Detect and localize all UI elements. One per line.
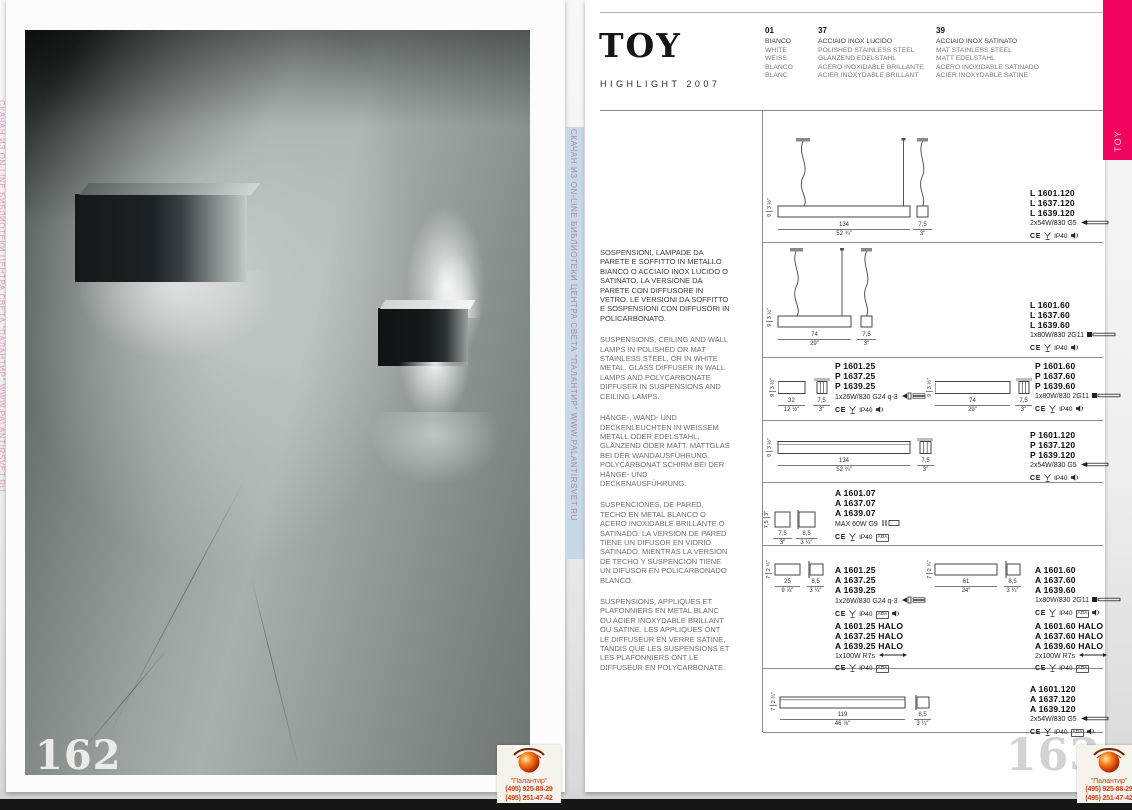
diagram-wall-25: 72 ¾″ 259 ⅞″ 8,53 ¼″ — [774, 561, 834, 601]
lamp-2g11-icon — [1092, 392, 1122, 401]
finish-name: MATT EDELSTAHL — [936, 55, 1058, 64]
product-code: P 1639.60 — [1035, 381, 1122, 391]
lamp-g5-icon — [1080, 219, 1110, 228]
palantir-phone-2: (495) 251-47-42 — [1085, 795, 1132, 804]
product-code: A 1601.25 HALO — [835, 621, 908, 631]
product-codes: A 1601.60 A 1637.60 A 1639.60 1x80W/830 … — [1035, 565, 1122, 619]
row-divider — [763, 420, 1103, 421]
height-dimension: 72 ¾″ — [765, 560, 772, 579]
lamp-spec: 1x26W/830 G24 q-3 — [835, 598, 898, 605]
diagram-suspension-60: 93 ½″ 7429″ 7,53″ — [777, 248, 897, 348]
glass-symbol-icon — [849, 664, 856, 674]
ip-rating: IP40 — [859, 611, 872, 618]
ip-rating: IP40 — [859, 407, 872, 414]
finish-name: ACIER INOXYDABLE SATINE — [936, 72, 1058, 81]
description-english: SUSPENSIONS, CEILING AND WALL LAMPS IN P… — [600, 335, 730, 401]
lamp-g24-icon — [901, 392, 927, 402]
finish-name: ACCIAIO INOX SATINATO — [936, 38, 1058, 47]
ce-mark: CE — [1035, 406, 1046, 413]
lamp-light-spread — [351, 412, 519, 542]
width-dimension: 259 ⅞″ — [775, 579, 800, 595]
palantir-name: "Палантир" — [511, 778, 548, 786]
product-code: L 1637.120 — [1030, 198, 1110, 208]
glass-symbol-icon — [849, 533, 856, 543]
lamp-spec: 2x100W R7s — [1035, 653, 1075, 660]
height-dimension: 93 ½″ — [766, 198, 773, 217]
glass-symbol-icon — [1049, 405, 1056, 415]
ada-badge: ADA — [876, 611, 890, 619]
diagram-ceiling-60: 93 ½″ 7429″ 7,53″ — [935, 378, 1035, 418]
lamp-g24-icon — [901, 596, 927, 606]
page-subtitle: HIGHLIGHT 2007 — [600, 79, 720, 89]
product-code: A 1637.60 — [1035, 575, 1122, 585]
speaker-icon — [1092, 609, 1101, 618]
lamp-spec: 1x80W/830 2G11 — [1030, 332, 1084, 339]
product-code: P 1601.25 — [835, 361, 927, 371]
ip-rating: IP40 — [1054, 345, 1067, 352]
product-code: A 1637.120 — [1030, 694, 1110, 704]
finish-name: ACERO INOXIDABLE BRILLANTE — [818, 64, 940, 73]
section-tab-toy: TOY — [1103, 0, 1132, 160]
product-codes: P 1601.60 P 1637.60 P 1639.60 1x80W/830 … — [1035, 361, 1122, 415]
speaker-icon — [1071, 474, 1080, 483]
product-code: A 1601.120 — [1030, 684, 1110, 694]
lamp-uplight-beam — [417, 178, 493, 318]
ce-mark: CE — [835, 611, 846, 618]
width-dimension: 7429″ — [778, 332, 851, 348]
product-code: P 1637.120 — [1030, 440, 1110, 450]
product-codes: L 1601.120 L 1637.120 L 1639.120 2x54W/8… — [1030, 188, 1110, 242]
width-dimension: 11946 ⅞″ — [780, 712, 905, 728]
depth-dimension: 8,53 ¼″ — [796, 531, 817, 547]
row-divider — [763, 357, 1103, 358]
palantir-phone-1: (495) 925-88-29 — [1085, 786, 1132, 795]
lamp-r7s-icon — [1078, 652, 1108, 660]
row-divider — [763, 242, 1103, 243]
depth-dimension: 7,53″ — [857, 332, 876, 348]
product-code: P 1601.60 — [1035, 361, 1122, 371]
page-number-left: 162 — [35, 732, 122, 775]
product-codes: A 1601.60 HALO A 1637.60 HALO A 1639.60 … — [1035, 621, 1108, 674]
product-code: A 1639.60 HALO — [1035, 641, 1108, 651]
height-dimension: 93 ½″ — [769, 378, 776, 397]
lamp-2g11-icon — [1092, 596, 1122, 605]
glass-symbol-icon — [1049, 609, 1056, 619]
glass-symbol-icon — [1044, 474, 1051, 484]
product-code: A 1601.25 — [835, 565, 927, 575]
ip-rating: IP40 — [859, 665, 872, 672]
ip-rating: IP40 — [1059, 610, 1072, 617]
product-code: L 1601.120 — [1030, 188, 1110, 198]
product-code: A 1601.60 HALO — [1035, 621, 1108, 631]
lamp-g5-icon — [1080, 715, 1110, 724]
top-rule — [600, 12, 1103, 13]
description-spanish: SUSPENCIONES, DE PARED, TECHO EN METAL B… — [600, 500, 730, 585]
description-german: HÄNGE-, WAND- UND DECKENLEUCHTEN IN WEIS… — [600, 413, 730, 488]
ip-rating: IP40 — [1054, 233, 1067, 240]
width-dimension: 13452 ¾″ — [778, 222, 910, 238]
product-codes: L 1601.60 L 1637.60 L 1639.60 1x80W/830 … — [1030, 300, 1117, 354]
wall-lamp-small — [378, 308, 468, 366]
ce-mark: CE — [835, 665, 846, 672]
speaker-icon — [892, 610, 901, 619]
product-code: L 1637.60 — [1030, 310, 1117, 320]
finish-name: ACCIAIO INOX LUCIDO — [818, 38, 940, 47]
finish-name: ACIER INOXYDABLE BRILLANT — [818, 72, 940, 81]
finish-column-37: 37 ACCIAIO INOX LUCIDO POLISHED STAINLES… — [818, 26, 940, 81]
section-tab-label: TOY — [1113, 130, 1123, 152]
product-codes: A 1601.25 HALO A 1637.25 HALO A 1639.25 … — [835, 621, 908, 674]
palantir-orb-icon — [1091, 746, 1127, 778]
product-code: P 1637.25 — [835, 371, 927, 381]
ip-rating: IP40 — [1059, 406, 1072, 413]
product-code: A 1637.07 — [835, 498, 901, 508]
ada-badge: ADA — [1076, 610, 1090, 618]
height-dimension: 93 ½″ — [766, 438, 773, 457]
glass-symbol-icon — [1044, 232, 1051, 242]
lamp-spec: 1x100W R7s — [835, 653, 875, 660]
glass-symbol-icon — [1044, 344, 1051, 354]
speaker-icon — [1071, 344, 1080, 353]
speaker-icon — [876, 406, 885, 415]
depth-dimension: 8,53 ¼″ — [1004, 579, 1021, 595]
product-description: SOSPENSIONI, LAMPADE DA PARETE E SOFFITT… — [600, 248, 730, 684]
wall-crack — [105, 477, 247, 742]
finish-name: MAT STAINLESS STEEL — [936, 47, 1058, 56]
lamp-g5-icon — [1080, 461, 1110, 470]
lamp-spec: 2x54W/830 G5 — [1030, 462, 1077, 469]
finish-column-39: 39 ACCIAIO INOX SATINATO MAT STAINLESS S… — [936, 26, 1058, 81]
ip-rating: IP40 — [1059, 665, 1072, 672]
glass-symbol-icon — [1049, 664, 1056, 674]
palantir-logo: "Палантир" (495) 925-88-29 (495) 251-47-… — [1077, 745, 1132, 803]
height-dimension: 72 ¾″ — [770, 692, 777, 711]
lamp-spec: 1x80W/830 2G11 — [1035, 597, 1089, 604]
product-code: L 1639.120 — [1030, 208, 1110, 218]
lamp-spec: 1x80W/830 2G11 — [1035, 393, 1089, 400]
diagram-ceiling-25: 93 ½″ 3212 ½″ 7,53″ — [778, 378, 838, 418]
product-photo: 162 — [25, 30, 530, 775]
width-dimension: 7429″ — [935, 398, 1010, 414]
finish-name: POLISHED STAINLESS STEEL — [818, 47, 940, 56]
product-codes: P 1601.120 P 1637.120 P 1639.120 2x54W/8… — [1030, 430, 1110, 484]
bottom-bar — [0, 799, 1132, 810]
depth-dimension: 7,53″ — [913, 222, 932, 238]
diagram-ceiling-120: 93 ½″ 13452 ¾″ 7,53″ — [777, 438, 947, 478]
ce-mark: CE — [1030, 345, 1041, 352]
product-code: A 1639.07 — [835, 508, 901, 518]
speaker-icon — [1076, 405, 1085, 414]
diagram-wall-60: 72 ¾″ 6124″ 8,53 ¼″ — [933, 561, 1033, 601]
height-dimension: 93 ½″ — [766, 308, 773, 327]
product-code: P 1637.60 — [1035, 371, 1122, 381]
depth-dimension: 8,53 ¼″ — [807, 579, 824, 595]
ada-badge: ADA — [1076, 665, 1090, 673]
right-page: TOY HIGHLIGHT 2007 01 BIANCO WHITE WEISS… — [585, 0, 1105, 792]
diagram-wall-120: 72 ¾″ 11946 ⅞″ 8,53 ¼″ — [779, 694, 949, 734]
ce-mark: CE — [835, 407, 846, 414]
product-code: P 1639.25 — [835, 381, 927, 391]
description-italian: SOSPENSIONI, LAMPADE DA PARETE E SOFFITT… — [600, 248, 730, 323]
ce-mark: CE — [1030, 475, 1041, 482]
palantir-orb-icon — [511, 746, 547, 778]
description-french: SUSPENSIONS, APPLIQUES ET PLAFONNIERS EN… — [600, 597, 730, 672]
finish-name: GLÄNZEND EDELSTAHL — [818, 55, 940, 64]
lamp-spec: MAX 60W G9 — [835, 521, 878, 528]
product-code: A 1601.07 — [835, 488, 901, 498]
depth-dimension: 8,53 ¼″ — [914, 712, 931, 728]
product-code: A 1601.60 — [1035, 565, 1122, 575]
wall-light-glow — [39, 270, 309, 490]
product-codes: A 1601.25 A 1637.25 A 1639.25 1x26W/830 … — [835, 565, 927, 620]
lamp-2g11-icon — [1087, 331, 1117, 340]
diagram-wall-07: 7,53″ 7,53″ 8,53 ¼″ — [774, 510, 829, 550]
height-dimension: 7,53″ — [763, 511, 770, 528]
product-code: P 1601.120 — [1030, 430, 1110, 440]
product-code: A 1639.25 — [835, 585, 927, 595]
product-codes: P 1601.25 P 1637.25 P 1639.25 1x26W/830 … — [835, 361, 927, 416]
glass-symbol-icon — [849, 610, 856, 620]
ce-mark: CE — [1035, 610, 1046, 617]
ce-mark: CE — [835, 534, 846, 541]
height-dimension: 93 ½″ — [926, 378, 933, 397]
lamp-g9-icon — [881, 519, 901, 529]
depth-dimension: 7,53″ — [917, 458, 934, 474]
product-codes: A 1601.07 A 1637.07 A 1639.07 MAX 60W G9… — [835, 488, 901, 543]
product-code: A 1637.25 — [835, 575, 927, 585]
glass-symbol-icon — [849, 406, 856, 416]
catalog-spread: СКАЧАН ИЗ ON-LINE БИБЛИОТЕКИ ЦЕНТРА СВЕТ… — [0, 0, 1132, 810]
palantir-logo: "Палантир" (495) 925-88-29 (495) 251-47-… — [497, 745, 561, 803]
lamp-spec: 1x26W/830 G24 q-3 — [835, 394, 898, 401]
watermark-center-strip: СКАЧАН ИЗ ON-LINE БИБЛИОТЕКИ ЦЕНТРА СВЕТ… — [565, 127, 584, 559]
lamp-spec: 2x54W/830 G5 — [1030, 220, 1077, 227]
product-code: A 1637.25 HALO — [835, 631, 908, 641]
depth-dimension: 7,53″ — [1015, 398, 1032, 414]
product-code: P 1639.120 — [1030, 450, 1110, 460]
wall-lamp-large — [75, 194, 247, 282]
product-code: L 1601.60 — [1030, 300, 1117, 310]
left-page: 162 — [6, 0, 565, 792]
product-code: A 1637.60 HALO — [1035, 631, 1108, 641]
ip-rating: IP40 — [1054, 475, 1067, 482]
header-rule — [600, 110, 1103, 111]
column-divider — [762, 110, 763, 732]
ce-mark: CE — [1030, 233, 1041, 240]
page-title: TOY — [599, 26, 682, 65]
height-dimension: 72 ¾″ — [926, 560, 933, 579]
lamp-r7s-icon — [878, 652, 908, 660]
product-code: A 1639.25 HALO — [835, 641, 908, 651]
palantir-phone-2: (495) 251-47-42 — [505, 795, 552, 804]
finish-code: 37 — [818, 26, 940, 35]
product-code: L 1639.60 — [1030, 320, 1117, 330]
depth-dimension: 7,53″ — [813, 398, 830, 414]
width-dimension: 3212 ½″ — [778, 398, 805, 414]
lamp-spec: 2x54W/830 G5 — [1030, 716, 1077, 723]
diagram-suspension-120: 93 ½″ 13452 ¾″ 7,53″ — [777, 138, 947, 238]
ce-mark: CE — [1035, 665, 1046, 672]
width-dimension: 13452 ¾″ — [778, 458, 910, 474]
finish-name: ACERO INOXIDABLE SATINADO — [936, 64, 1058, 73]
product-code: A 1639.120 — [1030, 704, 1110, 714]
speaker-icon — [1071, 232, 1080, 241]
palantir-phone-1: (495) 925-88-29 — [505, 786, 552, 795]
finish-code: 39 — [936, 26, 1058, 35]
ada-badge: ADA — [876, 665, 890, 673]
width-dimension: 7,53″ — [773, 531, 792, 547]
ip-rating: IP40 — [859, 534, 872, 541]
width-dimension: 6124″ — [935, 579, 997, 595]
ada-badge: ADA — [876, 534, 890, 542]
palantir-name: "Палантир" — [1091, 778, 1128, 786]
wall-crack — [250, 573, 302, 775]
product-code: A 1639.60 — [1035, 585, 1122, 595]
watermark-center-text: СКАЧАН ИЗ ON-LINE БИБЛИОТЕКИ ЦЕНТРА СВЕТ… — [565, 127, 578, 521]
